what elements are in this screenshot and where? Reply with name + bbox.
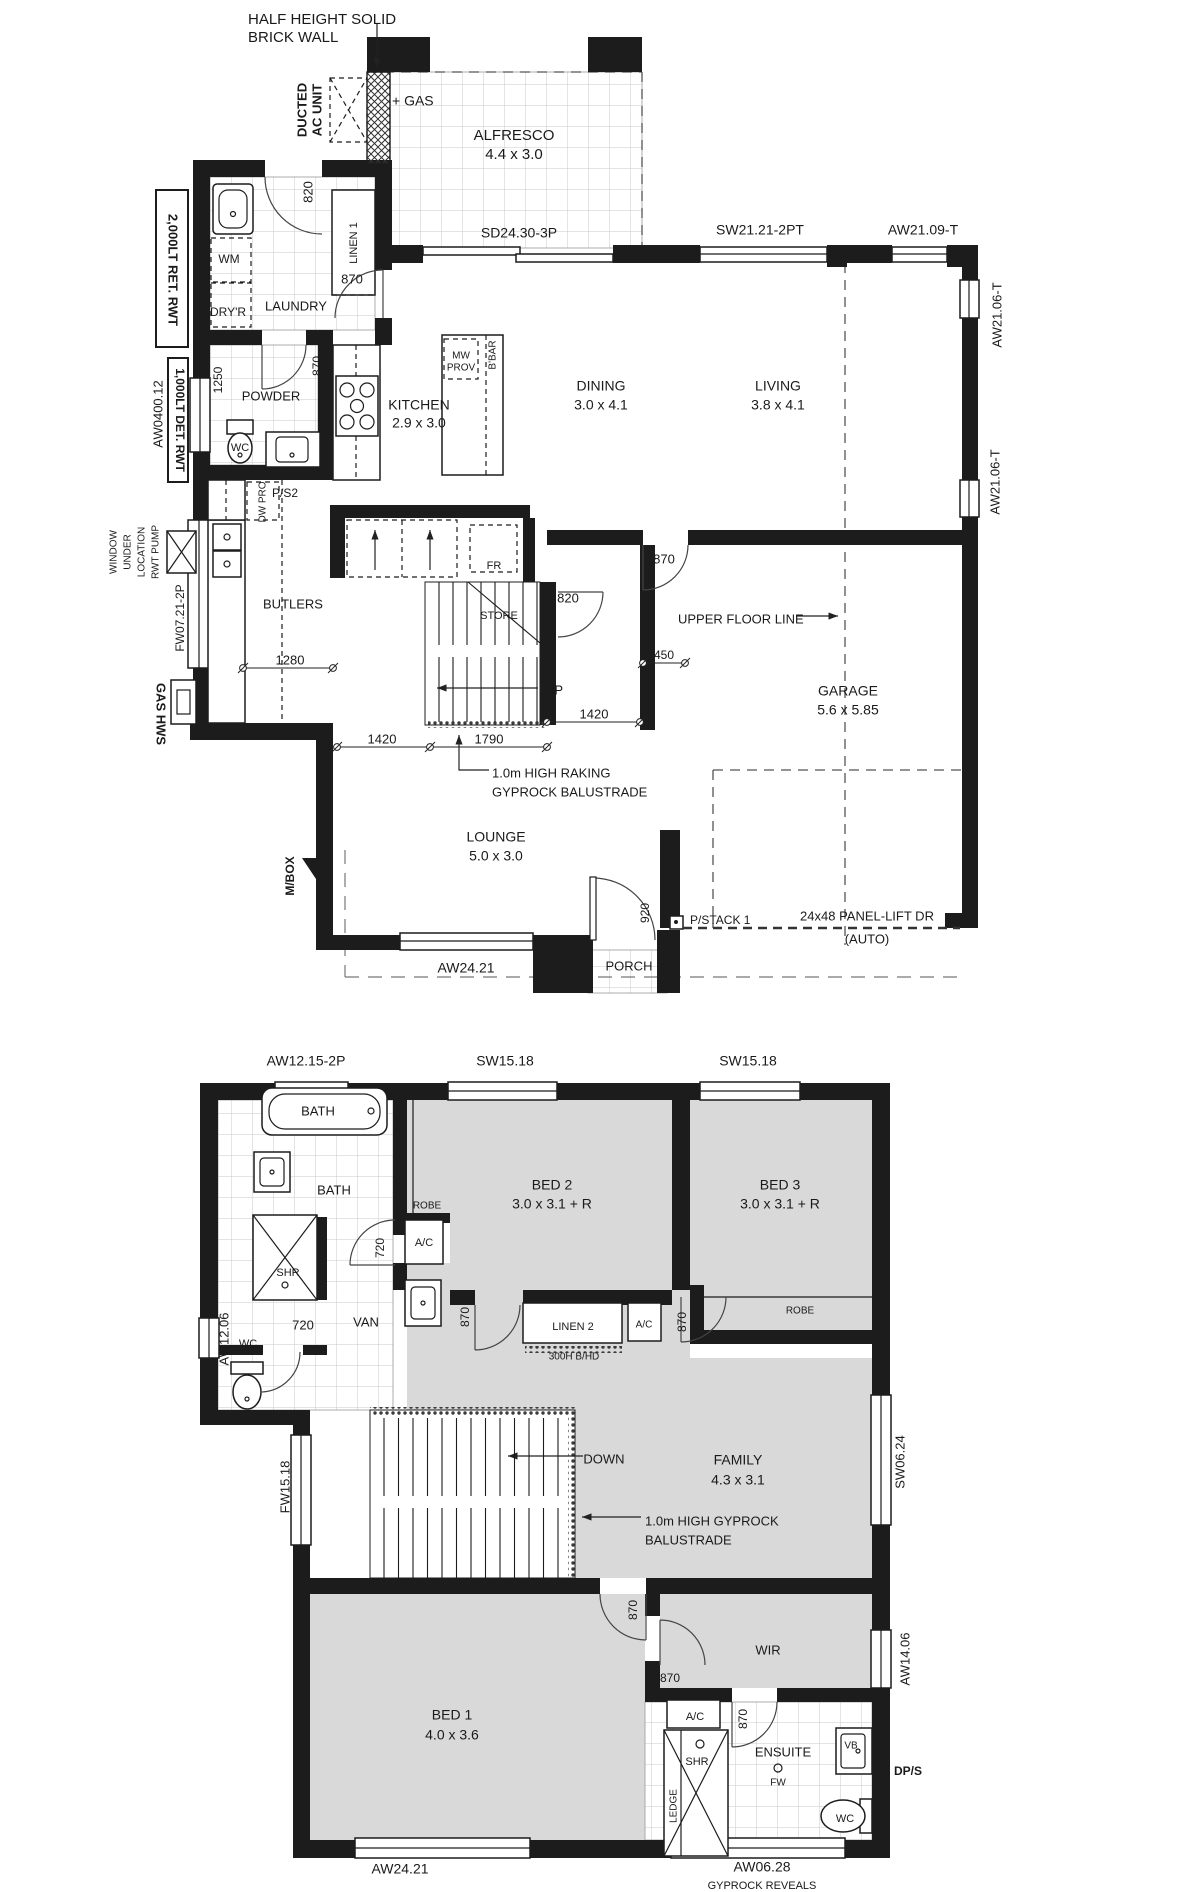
plan-label: WC (239, 1338, 257, 1350)
plan-label: POWDER (242, 388, 301, 403)
plan-label: BATH (301, 1103, 335, 1118)
ground-stairs (425, 582, 547, 728)
plan-label: DOWN (583, 1451, 624, 1466)
plan-label: 2.9 x 3.0 (392, 415, 446, 431)
plan-label: ROBE (413, 1201, 442, 1212)
powder-basin (266, 432, 320, 467)
plan-label: SW15.18 (719, 1053, 777, 1069)
plan-label: AW21.06-T (989, 282, 1004, 347)
plan-label: WINDOW (109, 530, 120, 574)
plan-label: 5.6 x 5.85 (817, 702, 879, 718)
upper-floor-plan: AW12.15-2PSW15.18SW15.18BATHBATHROBEBED … (199, 1053, 922, 1892)
plan-label: AW21.06-T (987, 449, 1002, 514)
plan-label: WM (218, 252, 239, 266)
window-aw21-06-t-upper (960, 280, 979, 318)
plan-label: FW07.21-2P (173, 584, 187, 651)
plan-label: PORCH (606, 958, 653, 973)
plan-label: DUCTED (294, 83, 309, 137)
mailbox (302, 858, 322, 888)
plan-label: (AUTO) (845, 931, 890, 946)
plan-label: SD24.30-3P (481, 225, 557, 241)
plan-label: DP/S (894, 1764, 922, 1778)
plan-label: BED 3 (760, 1177, 801, 1193)
pstack-point (670, 916, 683, 929)
bed1-carpet (310, 1594, 645, 1840)
ground-floor-plan: HALF HEIGHT SOLIDBRICK WALLDUCTEDAC UNIT… (109, 11, 1005, 993)
plan-label: BALUSTRADE (645, 1532, 732, 1547)
plan-label: SW15.18 (476, 1053, 534, 1069)
plan-label: BRICK WALL (248, 29, 338, 46)
plan-label: SHR (685, 1756, 708, 1768)
raking-balustrade (428, 720, 547, 728)
plan-label: AW06.28 (733, 1859, 790, 1875)
plan-label: 870 (626, 1600, 640, 1620)
plan-label: VAN (353, 1314, 379, 1329)
plan-label: LINEN 1 (348, 222, 360, 264)
plan-label: AW12.06 (216, 1313, 231, 1366)
plan-label: 720 (373, 1238, 387, 1258)
plan-label: UNDER (123, 534, 134, 570)
plan-label: UPPER FLOOR LINE (678, 611, 804, 626)
cooktop (336, 376, 378, 436)
plan-label: 820 (300, 181, 315, 203)
plan-label: SHR (276, 1267, 299, 1279)
window-fw15-18 (291, 1435, 311, 1545)
window-sw06-24 (871, 1395, 891, 1525)
plan-label: DW PRO (258, 481, 269, 522)
plan-label: PROV (447, 363, 476, 374)
pantry-shelves (347, 520, 457, 577)
plan-label: SW06.24 (892, 1435, 907, 1488)
plan-label: A/C (686, 1711, 704, 1723)
plan-label: GYPROCK REVEALS (708, 1880, 817, 1892)
plan-label: GYPROCK BALUSTRADE (492, 784, 648, 799)
plan-label: BED 2 (532, 1177, 573, 1193)
window-aw21-09-t (892, 247, 947, 262)
plan-label: DINING (577, 378, 626, 394)
plan-label: WC (836, 1813, 854, 1825)
plan-label: 1.0m HIGH RAKING (492, 765, 610, 780)
plan-label: BUTLERS (263, 596, 323, 611)
plan-label: 5.0 x 3.0 (469, 848, 523, 864)
corner-pantry-ps2 (208, 480, 245, 520)
plan-label: AW24.21 (371, 1861, 428, 1877)
plan-label: 4.3 x 3.1 (711, 1472, 765, 1488)
plan-label: AW21.09-T (888, 222, 959, 238)
plan-label: ALFRESCO (474, 127, 555, 144)
floor-plan-drawing: HALF HEIGHT SOLIDBRICK WALLDUCTEDAC UNIT… (0, 0, 1200, 1892)
plan-label: 4.0 x 3.6 (425, 1727, 479, 1743)
plan-label: DRY'R (210, 305, 246, 319)
window-aw24-21 (400, 933, 533, 950)
plan-label: 820 (557, 590, 579, 605)
bath-shower (253, 1215, 317, 1300)
plan-label: 920 (638, 903, 652, 923)
plan-label: SW21.21-2PT (716, 222, 804, 238)
stair-balustrade-top (370, 1407, 575, 1415)
plan-label: 24x48 PANEL-LIFT DR (800, 908, 934, 923)
plan-label: GARAGE (818, 683, 878, 699)
plan-label: AW24.21 (437, 960, 494, 976)
plan-label: 3.0 x 3.1 + R (740, 1196, 820, 1212)
front-door-leaf (590, 877, 596, 940)
plan-label: + GAS (392, 93, 434, 109)
plan-label: AC UNIT (309, 84, 324, 137)
wir-carpet (660, 1594, 872, 1688)
plan-label: 300H B/HD (549, 1352, 600, 1363)
plan-label: 1.0m HIGH GYPROCK (645, 1513, 779, 1528)
upper-stairs (370, 1407, 583, 1578)
plan-label: VB (844, 1741, 858, 1752)
plan-label: WC (231, 442, 249, 454)
plan-label: 1420 (580, 706, 609, 721)
plan-label: 1420 (368, 731, 397, 746)
stair-balustrade-side (568, 1414, 576, 1578)
rwt-pump-unit (167, 531, 196, 573)
plan-label: B'BAR (488, 340, 499, 369)
plan-label: AW12.15-2P (267, 1053, 346, 1069)
plan-label: 870 (310, 356, 324, 376)
plan-label: LEDGE (669, 1789, 680, 1823)
bath-basin (254, 1152, 290, 1192)
plan-label: FAMILY (714, 1452, 763, 1468)
plan-label: 1280 (276, 652, 305, 667)
plan-label: A/C (636, 1320, 653, 1331)
plan-label: LINEN 2 (552, 1321, 594, 1333)
plan-label: 450 (654, 648, 674, 662)
plan-label: FW (770, 1778, 786, 1789)
laundry-trough (213, 184, 253, 234)
vanity-basin (405, 1280, 441, 1326)
plan-label: LAUNDRY (265, 298, 327, 313)
window-sw15-18-b (700, 1082, 800, 1100)
plan-label: P/STACK 1 (690, 913, 751, 927)
ducted-ac-unit-cross (330, 78, 367, 142)
plan-label: P/S2 (272, 486, 298, 500)
plan-label: 1250 (211, 366, 225, 393)
upper-toilet (231, 1362, 263, 1409)
window-sw21-21-2pt (700, 247, 827, 262)
plan-label: STORE (480, 610, 518, 622)
plan-label: 870 (675, 1312, 689, 1332)
plan-label: UP (545, 682, 563, 697)
window-aw21-06-t-lower (960, 480, 979, 517)
sliding-door-sd24-30-3p (423, 247, 613, 262)
window-sw15-18-a (448, 1082, 557, 1100)
window-aw14-06 (871, 1630, 891, 1688)
plan-label: 870 (653, 551, 675, 566)
brick-pier-hatch (367, 72, 390, 164)
plan-label: LIVING (755, 378, 801, 394)
gas-hws-unit (171, 680, 196, 724)
plan-label: FR (487, 560, 502, 572)
window-aw0400-12 (190, 378, 210, 452)
window-aw24-21-upper (355, 1838, 530, 1858)
plan-label: 4.4 x 3.0 (485, 146, 543, 163)
plan-label: MW (452, 351, 470, 362)
plan-label: 870 (341, 271, 363, 286)
plan-label: FW15.18 (277, 1461, 292, 1514)
plan-label: AW14.06 (897, 1633, 912, 1686)
plan-label: 720 (292, 1317, 314, 1332)
plan-label: 3.8 x 4.1 (751, 397, 805, 413)
plan-label: LOUNGE (466, 829, 525, 845)
plan-label: RWT PUMP (151, 525, 162, 579)
plan-label: 870 (736, 1709, 750, 1729)
plan-label: BATH (317, 1182, 351, 1197)
plan-label: WIR (755, 1642, 780, 1657)
plan-label: 870 (660, 1671, 680, 1685)
plan-label: KITCHEN (388, 397, 449, 413)
plan-label: ROBE (786, 1306, 815, 1317)
plan-label: A/C (415, 1237, 433, 1249)
plan-label: AW0400.12 (150, 380, 165, 447)
plan-label: 3.0 x 3.1 + R (512, 1196, 592, 1212)
floor-plan-sheet: HALF HEIGHT SOLIDBRICK WALLDUCTEDAC UNIT… (0, 0, 1200, 1892)
plan-label: 1790 (475, 731, 504, 746)
plan-label: M/BOX (283, 856, 297, 895)
plan-label: BED 1 (432, 1707, 473, 1723)
plan-label: 1,000LT DET. RWT (173, 368, 187, 472)
plan-label: 3.0 x 4.1 (574, 397, 628, 413)
plan-label: HALF HEIGHT SOLID (248, 11, 396, 28)
plan-label: ENSUITE (755, 1744, 812, 1759)
plan-label: GAS HWS (154, 683, 169, 745)
plan-label: 870 (458, 1307, 472, 1327)
plan-label: LOCATION (137, 527, 148, 577)
plan-label: 2,000LT RET. RWT (166, 214, 181, 326)
